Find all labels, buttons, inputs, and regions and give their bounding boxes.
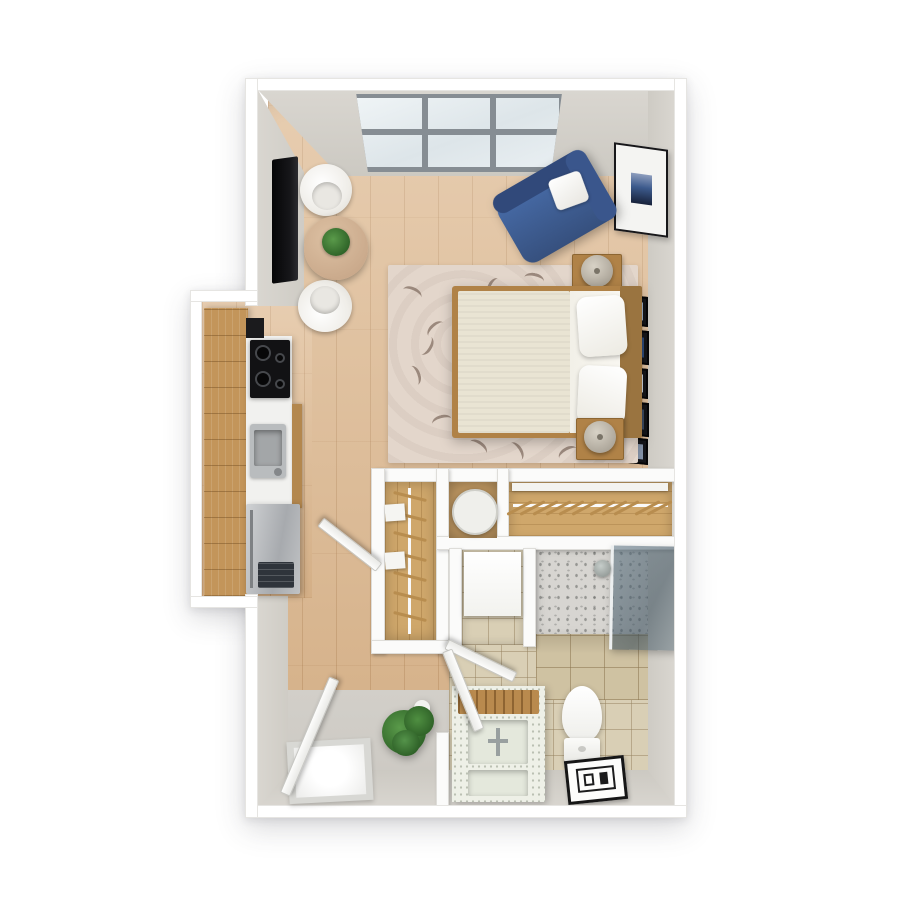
entry-plant <box>380 704 436 760</box>
utility-niche <box>462 550 523 645</box>
kitchen-cabinets <box>204 308 248 596</box>
tub-chair-bottom <box>298 280 352 332</box>
utility-appliance <box>464 552 521 616</box>
bed-pillow <box>577 365 628 425</box>
bed <box>452 286 642 438</box>
closet-small-shelf <box>384 551 405 569</box>
tv <box>272 156 298 284</box>
kitchen-hood <box>246 318 264 338</box>
interior-wall-closet-top <box>375 468 677 482</box>
closet-small <box>385 482 436 640</box>
lamp-bottom <box>584 421 616 453</box>
nook-wall-left <box>190 290 202 608</box>
window <box>352 94 564 172</box>
floorplan-render <box>0 0 900 900</box>
outer-wall-bottom <box>245 805 687 818</box>
toilet-button <box>578 746 586 752</box>
closet-small-rod <box>408 488 411 634</box>
washer-nook <box>449 482 497 538</box>
wall-art-image <box>631 173 652 206</box>
refrigerator <box>246 504 300 594</box>
cabinet-front-strip <box>292 404 302 508</box>
bath-mat-pattern <box>576 765 616 793</box>
interior-wall-utility-left <box>449 548 462 647</box>
nook-wall-top <box>190 290 258 302</box>
bath-mat <box>564 755 628 805</box>
nook-wall-bottom <box>190 596 258 608</box>
vanity-counter-inset <box>468 770 528 796</box>
cooktop <box>250 340 290 398</box>
interior-wall-bath-left <box>436 732 449 808</box>
bistro-table <box>304 216 368 280</box>
closet-small-shelf <box>384 503 405 521</box>
closet-long <box>509 482 672 536</box>
washer <box>452 489 498 535</box>
tub-chair-top <box>300 164 352 216</box>
outer-wall-top <box>245 78 687 91</box>
shower-glass <box>609 545 678 650</box>
toilet <box>558 686 606 766</box>
toilet-bowl <box>562 686 602 742</box>
table-plant <box>322 228 350 256</box>
outer-wall-left-lower <box>245 594 258 818</box>
lamp-top <box>581 255 613 287</box>
shower-head <box>594 560 611 577</box>
kitchen-sink <box>250 424 286 478</box>
outer-wall-left-upper <box>245 78 258 306</box>
interior-wall-closet-right <box>436 468 449 654</box>
bed-duvet <box>458 291 570 433</box>
outer-wall-right <box>674 78 687 818</box>
wall-face-left-lower <box>258 596 288 808</box>
bed-pillow <box>576 294 628 357</box>
window-mullion-h <box>352 129 564 135</box>
interior-wall-utility-right <box>523 548 536 647</box>
interior-wall-closet-bottom <box>371 640 449 654</box>
closet-long-shelf <box>512 483 668 491</box>
